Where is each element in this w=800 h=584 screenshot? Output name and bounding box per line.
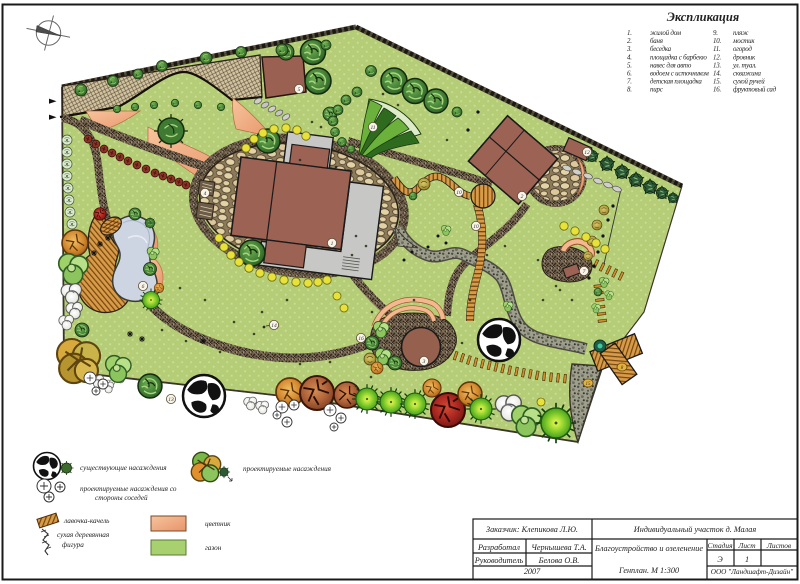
svg-text:Благоустройство и озеленение: Благоустройство и озеленение <box>594 544 703 553</box>
svg-text:Листов: Листов <box>766 541 792 550</box>
svg-text:8.: 8. <box>627 87 632 94</box>
svg-text:Стадия: Стадия <box>707 541 733 550</box>
svg-text:2: 2 <box>521 194 524 200</box>
svg-text:стороны соседей: стороны соседей <box>95 494 148 502</box>
svg-text:Экспликация: Экспликация <box>667 10 740 24</box>
svg-text:навес для авто: навес для авто <box>650 62 692 69</box>
svg-text:2.: 2. <box>627 38 632 45</box>
svg-text:ООО "Ландшафт-Дизайн": ООО "Ландшафт-Дизайн" <box>711 568 794 576</box>
svg-text:13.: 13. <box>713 62 721 69</box>
svg-text:11: 11 <box>370 125 375 131</box>
svg-text:10: 10 <box>473 224 479 230</box>
svg-text:16: 16 <box>358 336 364 342</box>
svg-text:12.: 12. <box>713 54 721 61</box>
svg-text:газон: газон <box>205 544 222 552</box>
svg-text:проектируемые насаждения со: проектируемые насаждения со <box>80 485 177 493</box>
svg-text:14.: 14. <box>713 71 721 78</box>
svg-text:15.: 15. <box>713 79 721 86</box>
svg-text:6: 6 <box>142 284 145 290</box>
svg-text:лавочка-качель: лавочка-качель <box>63 517 110 525</box>
svg-text:существующие насаждения: существующие насаждения <box>80 464 167 472</box>
svg-text:мостик: мостик <box>732 38 755 45</box>
svg-text:3: 3 <box>422 359 426 365</box>
svg-text:скважина: скважина <box>733 71 762 78</box>
svg-text:Белова О.В.: Белова О.В. <box>538 556 580 565</box>
svg-text:дровник: дровник <box>733 54 756 61</box>
svg-text:цветник: цветник <box>205 520 231 528</box>
svg-text:6.: 6. <box>627 71 632 78</box>
svg-text:проектируемые насаждения: проектируемые насаждения <box>243 465 332 473</box>
svg-text:огород: огород <box>733 46 752 53</box>
svg-text:7: 7 <box>583 269 586 275</box>
svg-text:16.: 16. <box>713 87 721 94</box>
svg-text:фруктовый сад: фруктовый сад <box>733 87 777 94</box>
svg-text:1: 1 <box>331 241 334 247</box>
svg-text:беседка: беседка <box>650 46 672 53</box>
svg-text:сухой ручей: сухой ручей <box>733 79 765 86</box>
svg-text:водоем с источником: водоем с источником <box>650 71 709 78</box>
svg-text:2007: 2007 <box>524 567 541 576</box>
svg-text:Э: Э <box>717 555 723 564</box>
svg-text:Чернышева Т.А.: Чернышева Т.А. <box>531 543 587 552</box>
svg-text:3.: 3. <box>626 46 632 53</box>
svg-text:1: 1 <box>745 555 749 564</box>
svg-text:Разработал: Разработал <box>477 543 520 552</box>
svg-text:Индивидуальный участок д. Мала: Индивидуальный участок д. Малая <box>633 525 757 534</box>
svg-text:11.: 11. <box>713 46 721 53</box>
svg-text:5.: 5. <box>627 62 632 69</box>
svg-text:10.: 10. <box>713 38 721 45</box>
svg-text:13: 13 <box>168 397 174 403</box>
svg-text:7.: 7. <box>627 79 632 86</box>
svg-text:12: 12 <box>584 150 590 156</box>
svg-text:Генплан. М 1:300: Генплан. М 1:300 <box>618 566 679 575</box>
svg-text:14: 14 <box>271 322 277 329</box>
svg-text:5: 5 <box>298 87 301 93</box>
svg-text:9.: 9. <box>713 30 718 37</box>
svg-text:15: 15 <box>586 382 592 387</box>
svg-text:детская площадка: детская площадка <box>650 79 702 86</box>
svg-text:1.: 1. <box>627 30 632 37</box>
svg-text:4.: 4. <box>627 54 632 61</box>
svg-text:фигура: фигура <box>62 541 84 549</box>
svg-text:Заказчик: Клепикова Л.Ю.: Заказчик: Клепикова Л.Ю. <box>486 525 578 534</box>
svg-text:баня: баня <box>650 38 663 45</box>
svg-text:ул. туал.: ул. туал. <box>732 62 757 69</box>
svg-text:4: 4 <box>204 190 207 197</box>
svg-text:пирс: пирс <box>650 87 663 94</box>
svg-text:жилой дом: жилой дом <box>650 30 682 37</box>
svg-text:Руководитель: Руководитель <box>474 556 524 565</box>
svg-text:Лист: Лист <box>737 541 756 550</box>
svg-text:сухая деревянная: сухая деревянная <box>57 531 110 539</box>
svg-text:площадка с барбекю: площадка с барбекю <box>650 54 707 61</box>
svg-text:пляж: пляж <box>733 30 749 37</box>
svg-text:10: 10 <box>456 190 462 196</box>
